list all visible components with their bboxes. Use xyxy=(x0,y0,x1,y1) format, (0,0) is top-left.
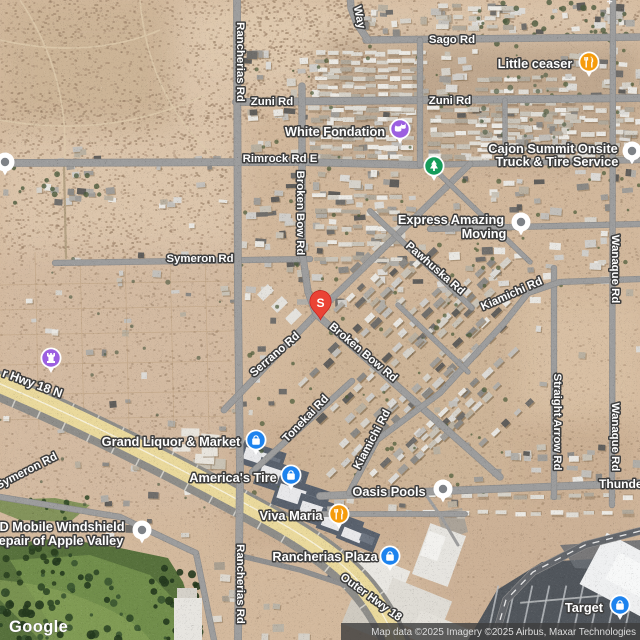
svg-text:Rancherias Rd: Rancherias Rd xyxy=(234,544,246,624)
svg-text:S: S xyxy=(316,296,324,310)
svg-text:Sago Rd: Sago Rd xyxy=(429,34,475,46)
svg-text:Target: Target xyxy=(565,600,604,615)
svg-text:Truck & Tire Service: Truck & Tire Service xyxy=(496,154,619,169)
svg-text:D Mobile Windshield: D Mobile Windshield xyxy=(0,519,125,534)
svg-text:Moving: Moving xyxy=(462,226,507,241)
svg-text:Rancherias Rd: Rancherias Rd xyxy=(234,22,246,102)
svg-text:Symeron Rd: Symeron Rd xyxy=(166,253,233,265)
svg-text:Wanaque Rd: Wanaque Rd xyxy=(609,235,621,304)
svg-text:Express Amazing: Express Amazing xyxy=(398,212,504,227)
svg-text:Oasis Pools: Oasis Pools xyxy=(352,484,425,499)
svg-text:White Fondation: White Fondation xyxy=(285,124,385,139)
svg-text:Little ceaser: Little ceaser xyxy=(498,56,573,71)
svg-text:Zuni Rd: Zuni Rd xyxy=(251,96,293,108)
svg-text:Google: Google xyxy=(9,618,68,636)
svg-text:Rancherias Plaza: Rancherias Plaza xyxy=(272,549,378,564)
svg-text:Zuni Rd: Zuni Rd xyxy=(429,95,471,107)
svg-text:Grand Liquor & Market: Grand Liquor & Market xyxy=(102,434,241,449)
svg-text:Rimrock Rd E: Rimrock Rd E xyxy=(243,153,318,165)
svg-text:America's Tire: America's Tire xyxy=(189,470,276,485)
svg-text:Broken Bow Rd: Broken Bow Rd xyxy=(294,171,306,256)
svg-text:Viva Maria: Viva Maria xyxy=(259,508,323,523)
svg-text:Map data ©2025 Imagery ©2025 A: Map data ©2025 Imagery ©2025 Airbus, Max… xyxy=(371,627,636,638)
svg-text:Straight Arrow Rd: Straight Arrow Rd xyxy=(551,373,563,470)
svg-text:Thunderbird: Thunderbird xyxy=(599,477,640,491)
svg-text:Wanaque Rd: Wanaque Rd xyxy=(609,403,621,472)
svg-text:epair of Apple Valley: epair of Apple Valley xyxy=(0,533,124,548)
